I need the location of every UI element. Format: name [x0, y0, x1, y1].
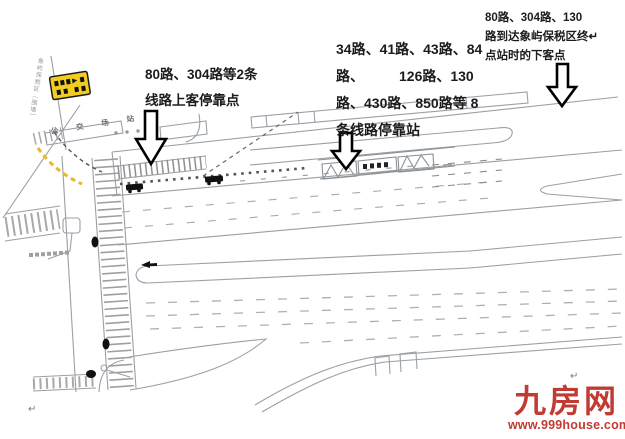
annotation-line: 线路上客停靠点 — [145, 88, 258, 114]
watermark: 九房网 www.999house.com — [508, 384, 625, 432]
road-linework — [3, 56, 622, 412]
yellow-signboard-icon — [49, 71, 90, 100]
illegible-small-text — [29, 251, 69, 257]
annotation-line: 路、 126路、130 — [336, 63, 482, 90]
annotation-topright-dropoff: 80路、304路、130 路到达象屿保税区终↵ 点站时的下客点 — [485, 9, 598, 66]
bus-icon — [126, 183, 143, 193]
signal-symbol — [92, 237, 99, 248]
annotation-middle-shelter: 34路、41路、43路、84 路、 126路、130 路、430路、850路等 … — [336, 36, 482, 144]
watermark-logo: 九房网 — [508, 384, 625, 418]
signal-symbol — [103, 339, 110, 350]
arrow-right-dropoff-icon — [548, 64, 576, 106]
vehicle-symbols — [86, 175, 223, 378]
annotation-line: 路到达象屿保税区终↵ — [485, 28, 598, 47]
signal-symbol — [86, 370, 96, 378]
annotation-line: 点站时的下客点 — [485, 47, 598, 66]
annotation-line: 路、430路、850路等 8 — [336, 90, 482, 117]
bus-icon — [205, 175, 223, 185]
bus-station-map-page: 80路、304路等2条 线路上客停靠点 34路、41路、43路、84 路、 12… — [0, 0, 625, 439]
shelter-sign-marks — [363, 162, 388, 169]
annotation-line: 34路、41路、43路、84 — [336, 36, 482, 63]
return-mark: ↵ — [28, 404, 36, 415]
annotation-line: 80路、304路等2条 — [145, 62, 258, 88]
annotation-left-boarding-stop: 80路、304路等2条 线路上客停靠点 — [145, 62, 258, 114]
watermark-url: www.999house.com — [508, 418, 625, 432]
annotation-line: 条线路停靠站 — [336, 117, 482, 144]
annotation-line: 80路、304路、130 — [485, 9, 598, 28]
yellow-turn-guide-line — [38, 148, 82, 184]
return-mark: ↵ — [570, 371, 578, 382]
